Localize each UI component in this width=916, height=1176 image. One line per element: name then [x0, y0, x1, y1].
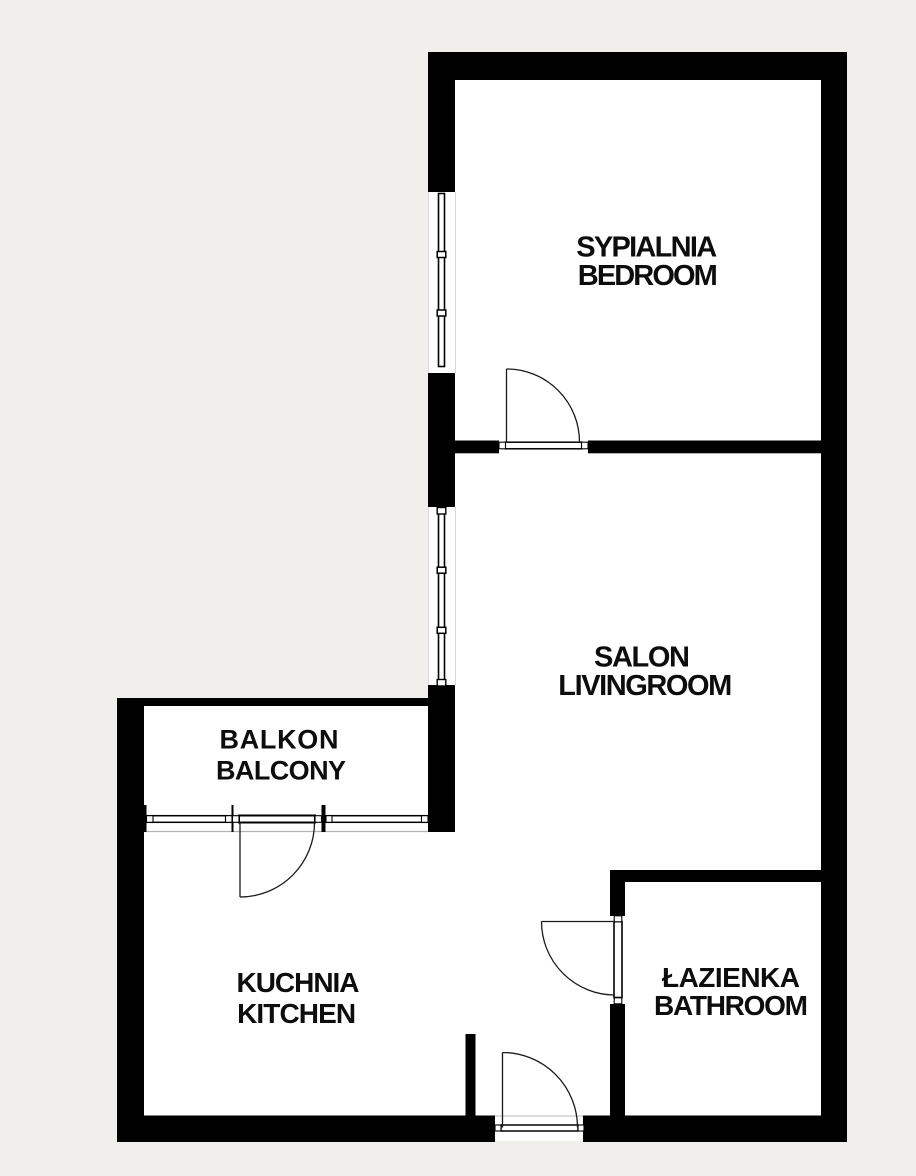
svg-text:LIVINGROOM: LIVINGROOM	[558, 670, 732, 702]
svg-text:KUCHNIA: KUCHNIA	[237, 967, 360, 998]
svg-text:BATHROOM: BATHROOM	[654, 990, 808, 1021]
svg-text:BALCONY: BALCONY	[216, 756, 346, 786]
svg-text:ŁAZIENKA: ŁAZIENKA	[662, 962, 800, 993]
svg-text:SALON: SALON	[594, 642, 690, 674]
svg-text:SYPIALNIA: SYPIALNIA	[576, 232, 717, 264]
svg-text:BEDROOM: BEDROOM	[578, 260, 718, 292]
svg-text:KITCHEN: KITCHEN	[237, 998, 356, 1029]
svg-text:BALKON: BALKON	[220, 725, 339, 755]
